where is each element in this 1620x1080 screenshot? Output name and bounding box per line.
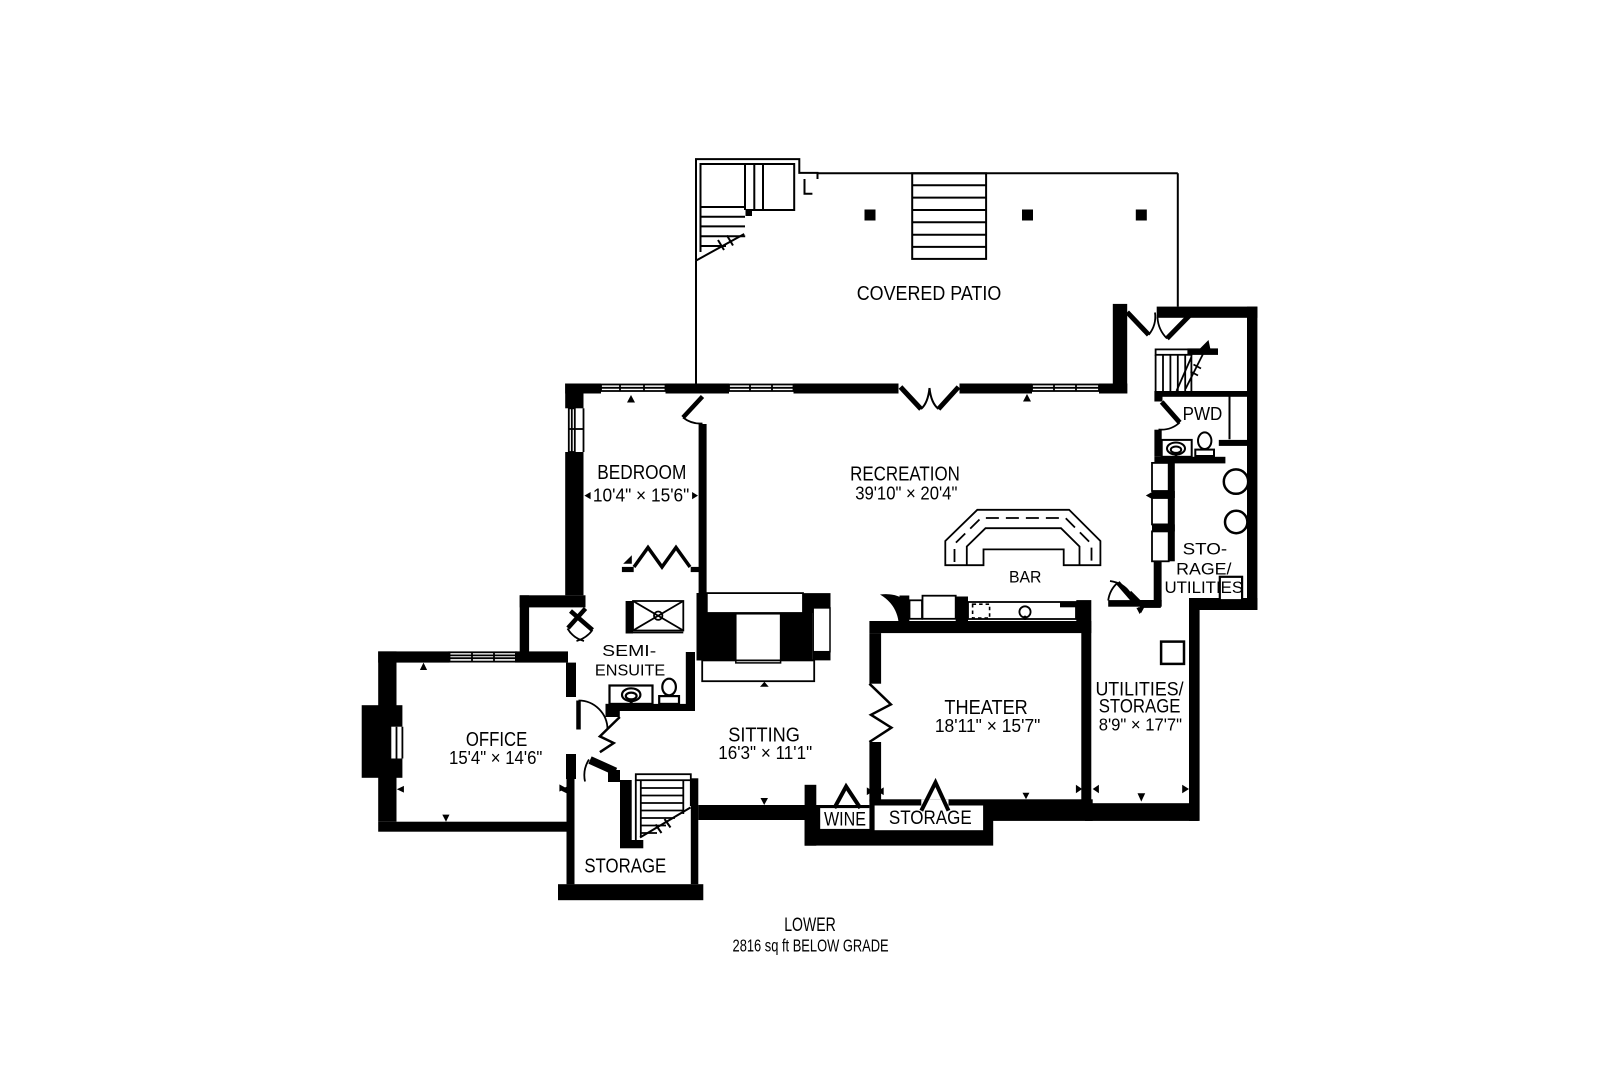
svg-text:RAGE/: RAGE/	[1176, 560, 1232, 579]
svg-text:RECREATION: RECREATION	[850, 464, 960, 486]
svg-text:COVERED PATIO: COVERED PATIO	[857, 283, 1002, 305]
svg-text:LOWER: LOWER	[784, 915, 836, 936]
svg-text:2816 sq ft BELOW GRADE: 2816 sq ft BELOW GRADE	[733, 936, 889, 956]
svg-text:STORAGE: STORAGE	[889, 808, 972, 829]
svg-text:STO-: STO-	[1183, 540, 1228, 559]
svg-text:WINE: WINE	[824, 810, 866, 831]
svg-text:39'10" × 20'4": 39'10" × 20'4"	[855, 484, 957, 504]
svg-text:BEDROOM: BEDROOM	[597, 462, 686, 484]
svg-text:BAR: BAR	[1009, 568, 1042, 587]
svg-text:15'4" × 14'6": 15'4" × 14'6"	[449, 748, 542, 768]
svg-text:10'4" × 15'6": 10'4" × 15'6"	[593, 486, 689, 506]
svg-text:STORAGE: STORAGE	[584, 856, 666, 878]
svg-text:ENSUITE: ENSUITE	[595, 662, 665, 679]
svg-text:PWD: PWD	[1183, 404, 1223, 424]
svg-text:16'3" × 11'1": 16'3" × 11'1"	[718, 743, 812, 763]
svg-text:SEMI-: SEMI-	[602, 643, 656, 660]
svg-text:UTILITIES: UTILITIES	[1164, 578, 1243, 597]
svg-text:18'11" × 15'7": 18'11" × 15'7"	[935, 716, 1041, 736]
svg-text:8'9" × 17'7": 8'9" × 17'7"	[1099, 715, 1182, 735]
